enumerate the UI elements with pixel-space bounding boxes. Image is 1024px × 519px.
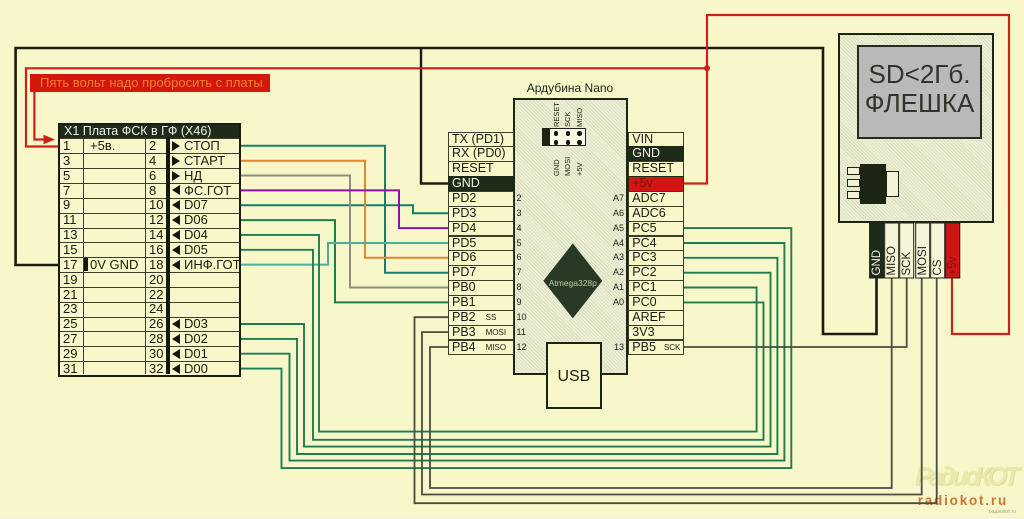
svg-text:Atmega328p: Atmega328p (548, 277, 596, 287)
